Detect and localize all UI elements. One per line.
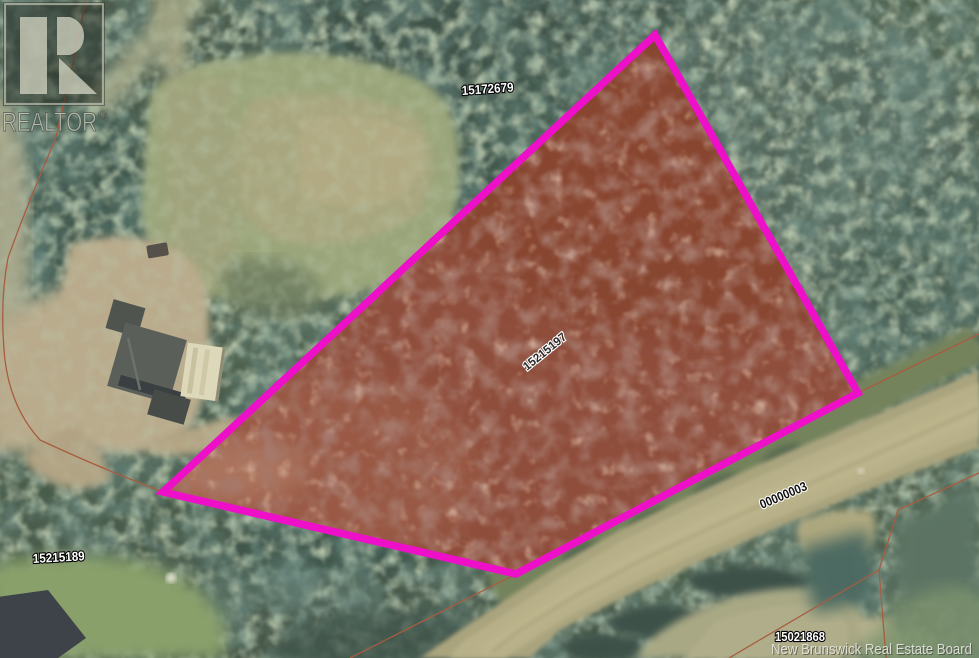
svg-text:15215189: 15215189 bbox=[32, 548, 85, 566]
svg-text:®: ® bbox=[98, 108, 107, 122]
svg-text:New Brunswick Real Estate Boar: New Brunswick Real Estate Board bbox=[771, 642, 972, 658]
svg-text:REALTOR: REALTOR bbox=[2, 107, 97, 137]
